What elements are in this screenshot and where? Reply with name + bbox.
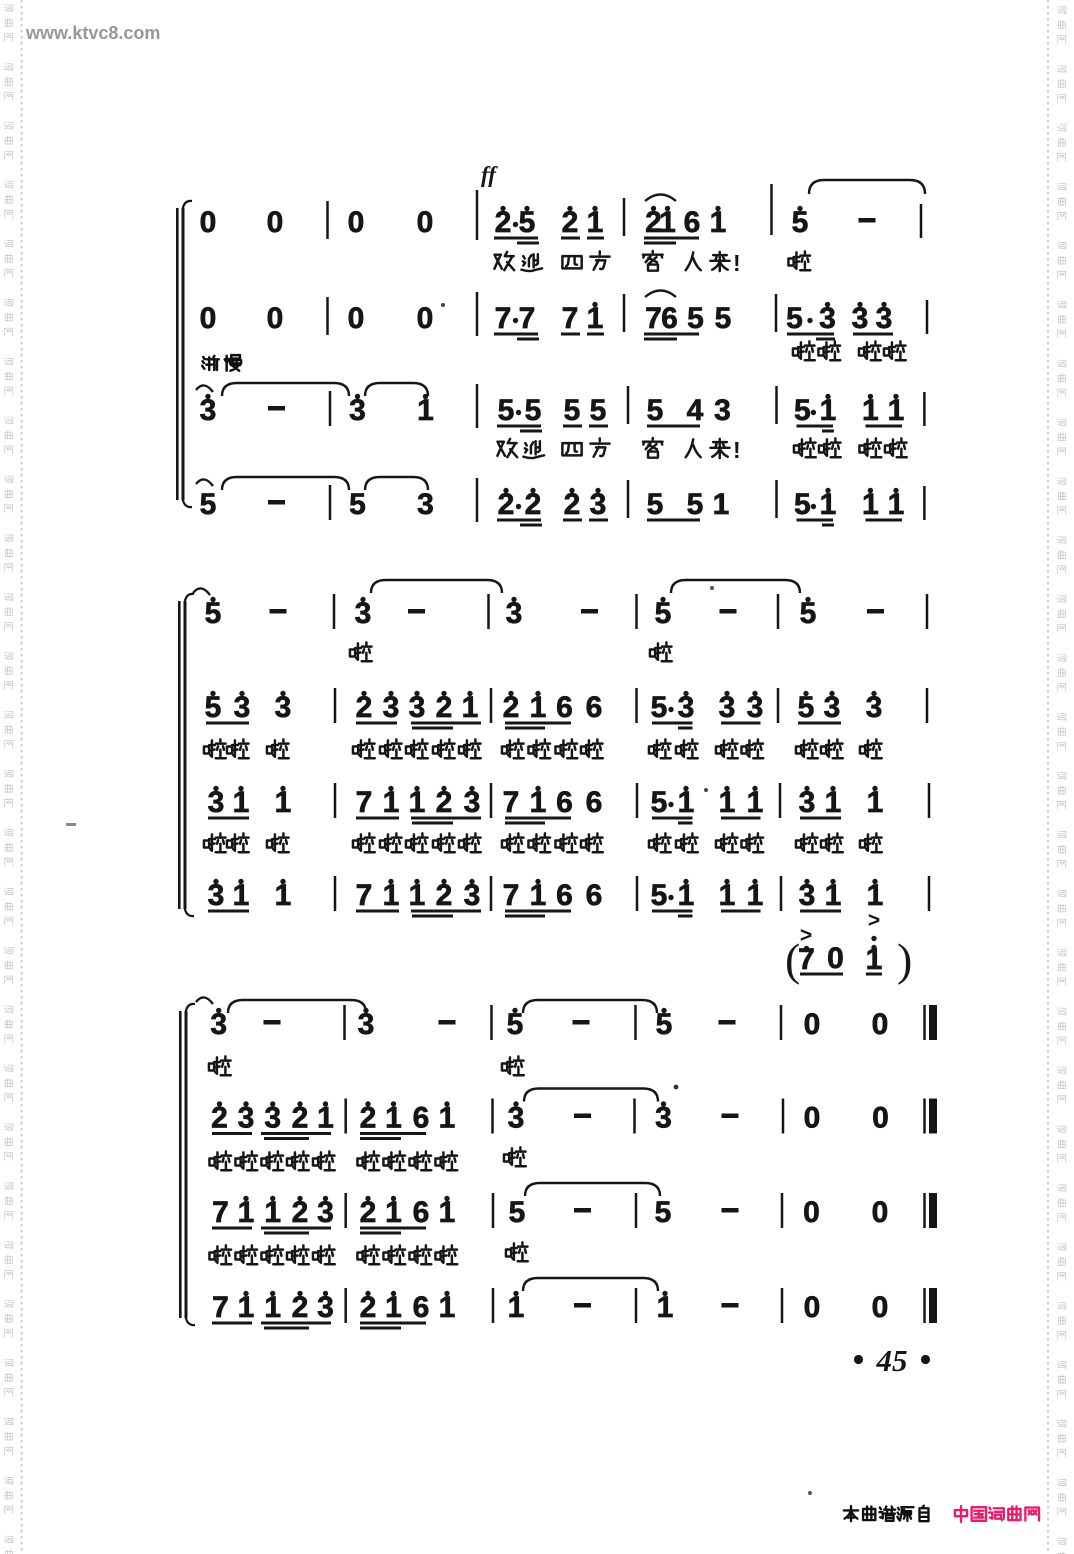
svg-text:6: 6: [684, 206, 701, 239]
svg-text:!: !: [733, 250, 741, 276]
svg-text:0: 0: [417, 302, 434, 335]
svg-text:6: 6: [586, 786, 603, 819]
svg-text:5: 5: [651, 691, 668, 724]
svg-text:3: 3: [417, 488, 434, 521]
svg-text:4: 4: [687, 394, 704, 427]
svg-text:7: 7: [503, 879, 520, 912]
svg-text:5: 5: [794, 488, 811, 521]
svg-text:5: 5: [564, 394, 581, 427]
svg-text:5: 5: [509, 1196, 526, 1229]
svg-text:0: 0: [267, 206, 284, 239]
svg-text:!: !: [733, 437, 741, 463]
svg-text:6: 6: [556, 691, 573, 724]
svg-text:5: 5: [525, 394, 542, 427]
svg-text:0: 0: [804, 1291, 821, 1324]
svg-text:5: 5: [647, 488, 664, 521]
svg-text:5: 5: [687, 302, 704, 335]
svg-text:0: 0: [872, 1196, 889, 1229]
svg-text:0: 0: [348, 206, 365, 239]
svg-text:0: 0: [803, 1196, 820, 1229]
svg-text:5: 5: [794, 394, 811, 427]
svg-text:45: 45: [876, 1343, 908, 1378]
svg-text:www.ktvc8.com: www.ktvc8.com: [25, 23, 160, 43]
svg-text:7: 7: [356, 786, 373, 819]
svg-text:5: 5: [200, 488, 217, 521]
svg-text:7: 7: [562, 302, 579, 335]
svg-text:5: 5: [590, 394, 607, 427]
svg-text:5: 5: [498, 394, 515, 427]
svg-text:0: 0: [872, 1008, 889, 1041]
svg-text:0: 0: [804, 1008, 821, 1041]
svg-text:5: 5: [655, 1196, 672, 1229]
svg-text:6: 6: [556, 879, 573, 912]
svg-text:6: 6: [586, 879, 603, 912]
svg-text:5: 5: [715, 302, 732, 335]
svg-text:6: 6: [413, 1291, 430, 1324]
svg-text:0: 0: [827, 942, 844, 975]
svg-text:7: 7: [645, 302, 662, 335]
svg-text:0: 0: [872, 1102, 889, 1135]
svg-text:3: 3: [714, 394, 731, 427]
svg-text:7: 7: [519, 302, 536, 335]
svg-text:6: 6: [413, 1196, 430, 1229]
svg-text:6: 6: [556, 786, 573, 819]
svg-text:7: 7: [212, 1196, 229, 1229]
svg-text:6: 6: [586, 691, 603, 724]
svg-text:5: 5: [687, 488, 704, 521]
svg-text:7: 7: [212, 1291, 229, 1324]
svg-text:>: >: [868, 909, 880, 932]
svg-text:0: 0: [200, 206, 217, 239]
svg-text:0: 0: [872, 1291, 889, 1324]
svg-text:0: 0: [200, 302, 217, 335]
svg-text:5: 5: [651, 786, 668, 819]
svg-text:0: 0: [804, 1102, 821, 1135]
svg-text:5: 5: [647, 394, 664, 427]
svg-text:1: 1: [713, 488, 730, 521]
svg-text:): ): [897, 934, 912, 985]
svg-text:ff: ff: [481, 162, 498, 187]
svg-text:0: 0: [348, 302, 365, 335]
svg-text:7: 7: [356, 879, 373, 912]
svg-text:5: 5: [786, 302, 803, 335]
svg-text:7: 7: [503, 786, 520, 819]
svg-text:6: 6: [661, 302, 678, 335]
svg-text:5: 5: [349, 488, 366, 521]
svg-text:6: 6: [413, 1102, 430, 1135]
svg-text:5: 5: [651, 879, 668, 912]
svg-text:0: 0: [267, 302, 284, 335]
svg-text:0: 0: [417, 206, 434, 239]
svg-text:7: 7: [495, 302, 512, 335]
